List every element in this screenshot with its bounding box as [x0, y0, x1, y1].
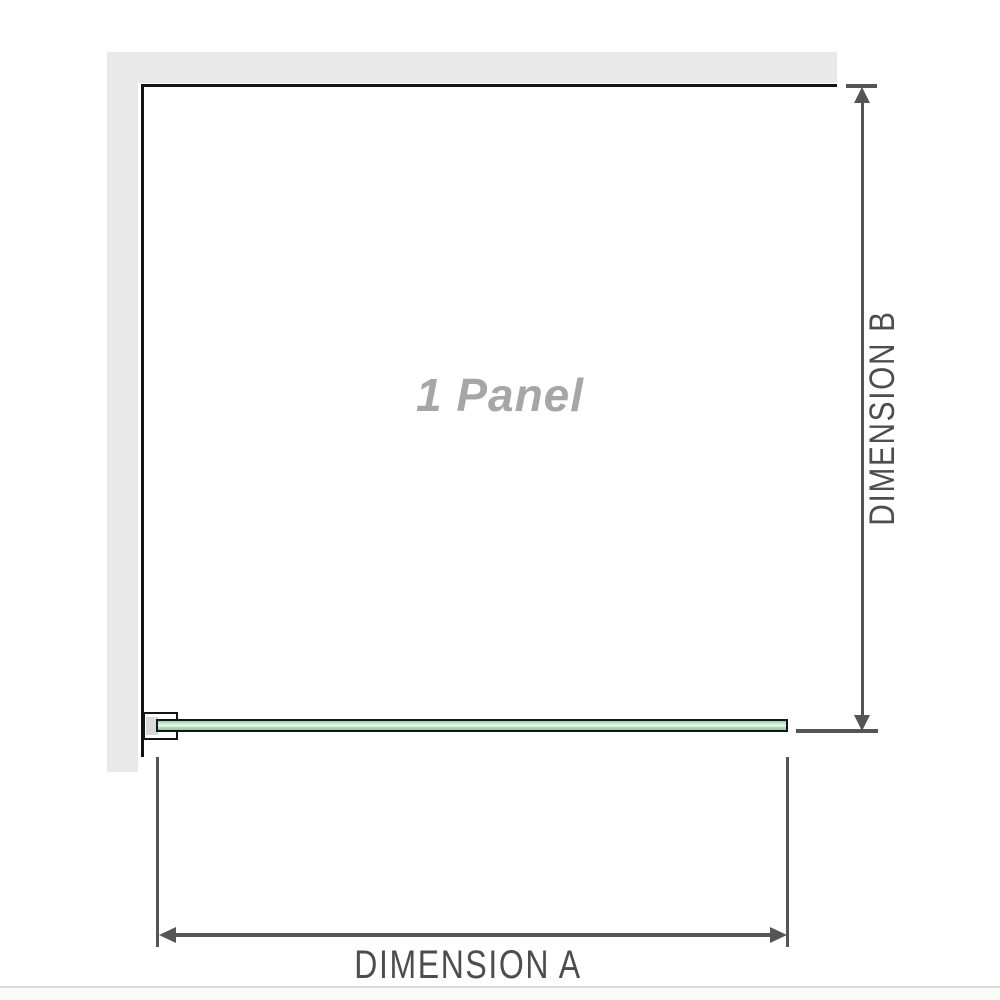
arrow-left-icon [159, 927, 176, 943]
panel-frame-top-line [141, 84, 837, 87]
page-background-strip [0, 988, 1000, 1000]
dimension-a-line [170, 933, 776, 937]
panel-count-label: 1 Panel [330, 372, 670, 418]
glass-panel [156, 719, 788, 732]
shower-panel-diagram: 1 Panel DIMENSION B DIMENSION A [0, 0, 1000, 1000]
dimension-a-extension-right [786, 757, 789, 947]
arrow-up-icon [854, 87, 870, 103]
dimension-a-label: DIMENSION A [308, 944, 628, 986]
arrow-down-icon [854, 715, 870, 731]
arrow-right-icon [770, 927, 787, 943]
panel-frame-left-line [141, 84, 144, 757]
wall-top-bar [107, 52, 837, 83]
dimension-b-label: DIMENSION B [865, 282, 901, 554]
wall-left-bar [107, 52, 138, 772]
dimension-a-extension-left [156, 757, 159, 947]
